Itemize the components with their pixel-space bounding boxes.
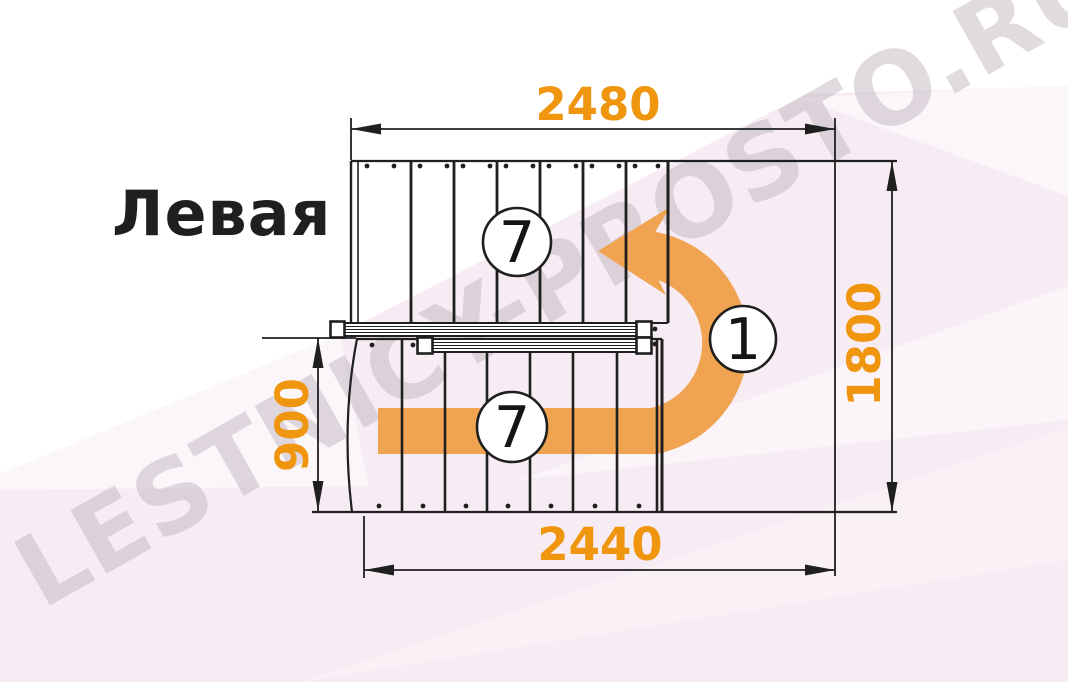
top-flight-steps-label: 7 [499,210,535,276]
dim-label-left: 900 [266,378,319,472]
landing-lower-beam-right-cap [637,338,652,354]
dim-label-top: 2480 [535,78,660,131]
page-title: Левая [112,183,331,245]
dim-label-bottom: 2440 [537,518,662,571]
turn-label: 1 [725,307,761,373]
dim-label-right: 1800 [838,281,891,406]
staircase-drawing-page: LESTNICY-PROSTO.RU [0,0,1068,682]
staircase-plan-canvas: LESTNICY-PROSTO.RU [0,0,1068,682]
landing-upper-beam-right-cap [637,322,652,338]
landing-upper-beam-left-cap [331,322,345,338]
bottom-flight-steps-label: 7 [494,395,530,461]
landing-lower-beam-left-cap [418,338,433,354]
